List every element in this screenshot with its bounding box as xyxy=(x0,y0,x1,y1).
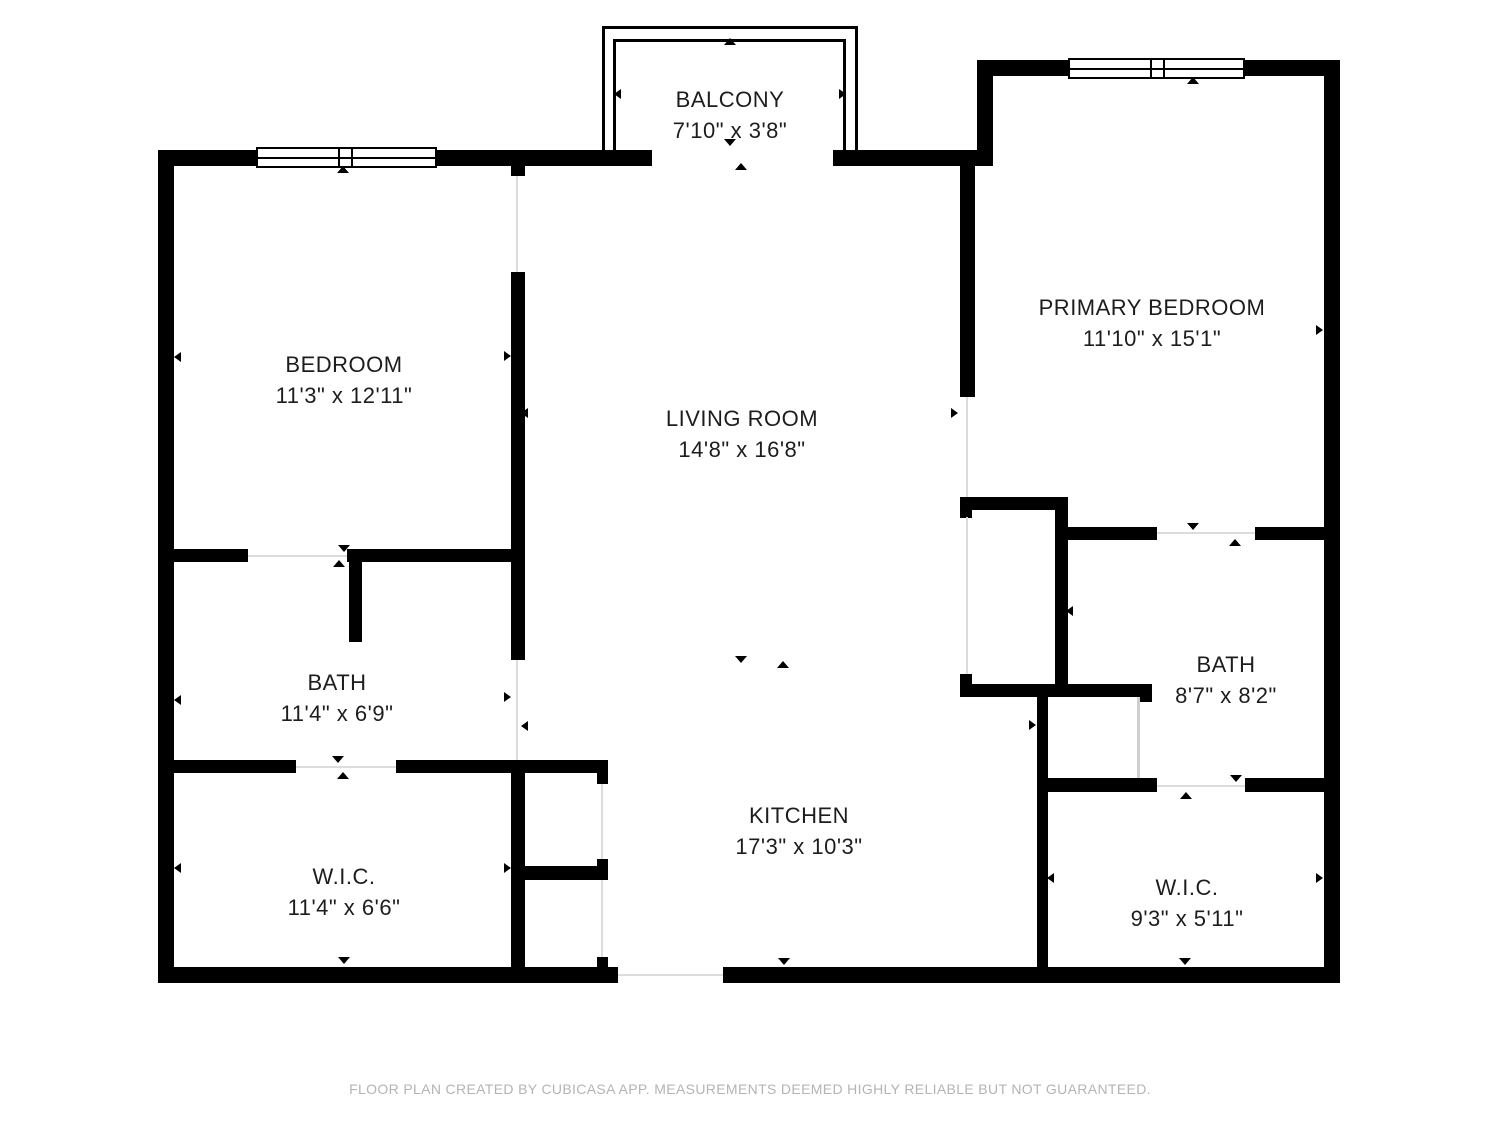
room-label-living-room: LIVING ROOM 14'8" x 16'8" xyxy=(666,403,818,465)
wall-segment xyxy=(525,866,608,880)
wall-segment xyxy=(960,166,975,397)
measure-arrow-down xyxy=(1230,775,1242,782)
measure-arrow-up xyxy=(777,661,789,668)
entry-opening xyxy=(618,974,723,976)
footer-disclaimer: FLOOR PLAN CREATED BY CUBICASA APP. MEAS… xyxy=(349,1081,1151,1097)
room-name: BATH xyxy=(281,667,394,698)
wall-segment xyxy=(960,497,1068,510)
measure-arrow-up xyxy=(1229,539,1241,546)
wall-segment xyxy=(977,60,1068,76)
measure-arrow-up xyxy=(1187,77,1199,84)
wall-segment xyxy=(158,150,174,983)
door-opening xyxy=(296,766,396,768)
room-name: PRIMARY BEDROOM xyxy=(1039,292,1266,323)
wall-segment xyxy=(158,150,256,166)
room-name: BEDROOM xyxy=(276,349,413,380)
room-label-primary-bedroom: PRIMARY BEDROOM 11'10" x 15'1" xyxy=(1039,292,1266,354)
window-mullion xyxy=(1150,58,1152,79)
wall-segment xyxy=(349,562,362,642)
wall-segment xyxy=(511,549,525,660)
wall-segment xyxy=(1140,697,1152,702)
room-dimensions: 11'10" x 15'1" xyxy=(1039,323,1266,354)
measure-arrow-down xyxy=(778,958,790,965)
wall-segment xyxy=(1255,527,1327,540)
window-mullion xyxy=(1163,58,1165,79)
wall-segment xyxy=(1048,778,1157,792)
wall-segment xyxy=(597,773,608,784)
wall-segment xyxy=(174,760,296,773)
room-label-wic-right: W.I.C. 9'3" x 5'11" xyxy=(1131,872,1244,934)
window xyxy=(1068,58,1245,79)
shower-outline xyxy=(1137,697,1140,778)
measure-arrow-up xyxy=(337,166,349,173)
window-mullion xyxy=(338,147,340,168)
balcony-railing xyxy=(855,26,858,150)
wall-segment xyxy=(511,166,525,176)
wall-segment xyxy=(1068,527,1157,540)
measure-arrow-down xyxy=(1179,958,1191,965)
wall-segment xyxy=(396,760,608,773)
room-dimensions: 14'8" x 16'8" xyxy=(666,434,818,465)
measure-arrow-left xyxy=(174,695,181,705)
measure-arrow-up xyxy=(333,560,345,567)
window-pane-line xyxy=(258,157,435,159)
room-label-balcony: BALCONY 7'10" x 3'8" xyxy=(673,84,787,146)
balcony-railing xyxy=(602,26,605,150)
window-mullion xyxy=(351,147,353,168)
wall-segment xyxy=(437,150,652,166)
room-label-bedroom: BEDROOM 11'3" x 12'11" xyxy=(276,349,413,411)
room-dimensions: 11'4" x 6'6" xyxy=(288,892,401,923)
door-opening xyxy=(601,784,603,859)
measure-arrow-up xyxy=(724,38,736,45)
measure-arrow-left xyxy=(1047,873,1054,883)
wall-segment xyxy=(347,549,525,562)
room-name: W.I.C. xyxy=(288,861,401,892)
wall-segment xyxy=(833,150,993,166)
measure-arrow-right xyxy=(504,863,511,873)
wall-segment xyxy=(1055,497,1068,690)
room-label-kitchen: KITCHEN 17'3" x 10'3" xyxy=(735,800,862,862)
measure-arrow-down xyxy=(332,756,344,763)
room-dimensions: 11'3" x 12'11" xyxy=(276,380,413,411)
wall-segment xyxy=(1037,690,1048,967)
wall-segment xyxy=(1245,778,1327,792)
measure-arrow-right xyxy=(1316,325,1323,335)
measure-arrow-down xyxy=(735,656,747,663)
door-opening xyxy=(516,176,518,272)
window-pane-line xyxy=(1070,68,1243,70)
room-dimensions: 7'10" x 3'8" xyxy=(673,115,787,146)
measure-arrow-right xyxy=(504,351,511,361)
measure-arrow-left xyxy=(614,89,621,99)
measure-arrow-left xyxy=(1066,606,1073,616)
measure-arrow-down xyxy=(1187,523,1199,530)
measure-arrow-right xyxy=(1316,873,1323,883)
wall-segment xyxy=(1324,60,1340,983)
door-opening xyxy=(1157,785,1245,787)
wall-segment xyxy=(511,773,525,967)
room-dimensions: 8'7" x 8'2" xyxy=(1175,680,1277,711)
room-dimensions: 17'3" x 10'3" xyxy=(735,831,862,862)
measure-arrow-right xyxy=(839,89,846,99)
door-opening xyxy=(516,660,518,760)
measure-arrow-up xyxy=(1180,792,1192,799)
measure-arrow-right xyxy=(951,408,958,418)
room-label-bath-right: BATH 8'7" x 8'2" xyxy=(1175,649,1277,711)
wall-segment xyxy=(158,967,618,983)
measure-arrow-left xyxy=(521,408,528,418)
measure-arrow-up xyxy=(735,163,747,170)
room-dimensions: 11'4" x 6'9" xyxy=(281,698,394,729)
measure-arrow-right xyxy=(1029,720,1036,730)
measure-arrow-down xyxy=(338,545,350,552)
measure-arrow-down xyxy=(338,957,350,964)
measure-arrow-right xyxy=(504,692,511,702)
room-name: W.I.C. xyxy=(1131,872,1244,903)
window xyxy=(256,147,437,168)
measure-arrow-up xyxy=(337,772,349,779)
wall-segment xyxy=(597,859,608,880)
measure-arrow-left xyxy=(967,325,974,335)
wall-segment xyxy=(960,684,1152,697)
measure-arrow-left xyxy=(174,352,181,362)
door-opening xyxy=(1157,532,1255,534)
wall-segment xyxy=(723,967,1340,983)
room-label-bath-left: BATH 11'4" x 6'9" xyxy=(281,667,394,729)
room-label-wic-left: W.I.C. 11'4" x 6'6" xyxy=(288,861,401,923)
room-name: KITCHEN xyxy=(735,800,862,831)
door-opening xyxy=(601,880,603,957)
wall-segment xyxy=(597,957,608,967)
door-opening xyxy=(248,555,347,557)
measure-arrow-left xyxy=(521,721,528,731)
room-name: LIVING ROOM xyxy=(666,403,818,434)
room-name: BALCONY xyxy=(673,84,787,115)
floor-plan-canvas: BALCONY 7'10" x 3'8" BEDROOM 11'3" x 12'… xyxy=(0,0,1500,1125)
measure-arrow-left xyxy=(174,863,181,873)
wall-segment xyxy=(1245,60,1340,76)
room-name: BATH xyxy=(1175,649,1277,680)
room-dimensions: 9'3" x 5'11" xyxy=(1131,903,1244,934)
closet-opening xyxy=(966,517,968,674)
balcony-railing xyxy=(602,26,858,29)
door-opening xyxy=(966,397,968,497)
wall-segment xyxy=(174,549,248,562)
